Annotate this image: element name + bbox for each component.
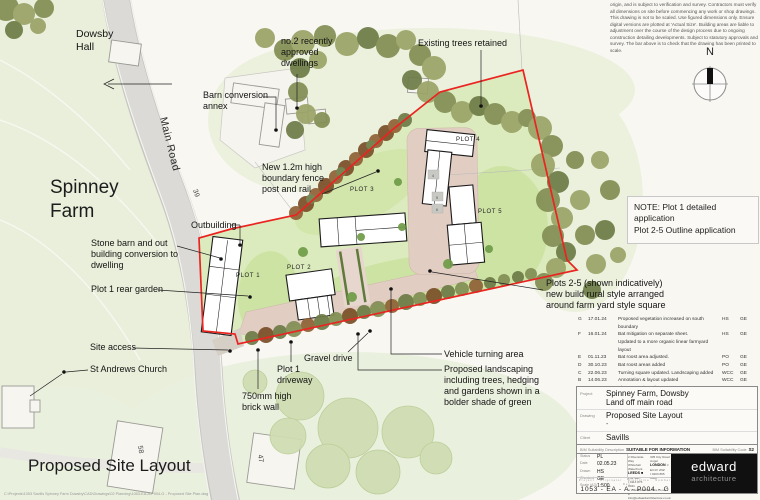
church-label: St Andrews Church	[90, 364, 167, 375]
dowsby-hall-label: Dowsby Hall	[76, 28, 113, 54]
rear-garden-label: Plot 1 rear garden	[91, 284, 163, 295]
revision-row: D30.10.23Bat roost areas addedPOGE	[578, 362, 757, 370]
site-access-label: Site access	[90, 342, 136, 353]
drawing-number-row: Project · Originator · Discipline · Numb…	[577, 477, 673, 493]
plots-2-5-label: Plots 2-5 (shown indicatively) new build…	[546, 278, 666, 311]
gravel-drive-label: Gravel drive	[304, 353, 353, 364]
client-label: Client	[577, 433, 606, 442]
date-value: 02.05.23	[597, 461, 616, 468]
north-needle	[707, 68, 713, 84]
title-block-bottom: StatusPL Date02.05.23 DrawnHS CheckedGE …	[576, 454, 758, 494]
plot-4-label: PLOT 4	[456, 137, 480, 143]
turning-area-label: Vehicle turning area	[444, 349, 524, 360]
bim-suitability-row: BIM Suitability DescriptionSUITABLE FOR …	[576, 445, 758, 454]
drawing-label: Drawing	[577, 411, 606, 429]
drawing-value: Proposed Site Layout	[606, 411, 683, 420]
house-number-47: 47	[256, 454, 264, 463]
bim-code: S2	[749, 447, 754, 452]
revision-row: C22.06.23Turning square updated. Landsca…	[578, 370, 757, 378]
approved-dwellings-label: no.2 recently approved dwellings	[281, 36, 333, 69]
file-path: C:\Projects\1053 Savills Spinney Farm Do…	[4, 492, 208, 496]
plot-3-label: PLOT 3	[350, 187, 374, 193]
spinney-farm-label: Spinney Farm	[50, 176, 119, 224]
project-value: Spinney Farm, Dowsby Land off main road	[606, 389, 689, 408]
revision-row: Updated to a more organic linear farmyar…	[578, 339, 757, 354]
drawing-sub: -	[606, 421, 683, 429]
plot-1-label: PLOT 1	[236, 273, 260, 279]
brick-wall-label: 750mm high brick wall	[242, 391, 292, 413]
trees-retained-label: Existing trees retained	[418, 38, 507, 49]
landscaping-label: Proposed landscaping including trees, he…	[444, 364, 540, 408]
north-arrow: N	[684, 44, 736, 110]
note-box: NOTE: Plot 1 detailed application Plot 2…	[627, 196, 759, 244]
sheet-title: Proposed Site Layout	[28, 456, 191, 476]
status-value: PL	[597, 454, 603, 461]
drawing-number-labels: Project · Originator · Discipline · Numb…	[577, 478, 673, 486]
title-block: ProjectSpinney Farm, Dowsby Land off mai…	[576, 386, 758, 494]
plot-3-building	[319, 213, 407, 247]
barn-annex-label: Barn conversion annex	[203, 90, 268, 112]
bim-desc: SUITABLE FOR INFORMATION	[626, 447, 690, 452]
drawing-number: 1053 - EA - A - P004 - G	[577, 486, 673, 493]
edward-architecture-logo: edward architecture	[671, 454, 757, 493]
plot-2-label: PLOT 2	[287, 265, 311, 271]
driveway-label: Plot 1 driveway	[277, 364, 313, 386]
house-number-58: 58	[136, 445, 144, 454]
revision-row: E01.11.23Bat roost area adjusted.POGE	[578, 354, 757, 362]
fence-label: New 1.2m high boundary fence post and ra…	[262, 162, 324, 195]
plot-5-label: PLOT 5	[478, 209, 502, 215]
client-value: Savills	[606, 433, 629, 442]
revision-row: F16.01.24Bat mitigation on separate shee…	[578, 331, 757, 339]
north-label: N	[706, 46, 714, 58]
project-info: ProjectSpinney Farm, Dowsby Land off mai…	[576, 386, 758, 445]
project-label: Project	[577, 389, 606, 408]
revision-row: G17.01.24Proposed vegetation increased o…	[578, 316, 757, 331]
drawn-value: HS	[597, 469, 604, 476]
outbuilding-label: Outbuilding	[191, 220, 237, 231]
stone-barn-label: Stone barn and out building conversion t…	[91, 238, 178, 271]
drawing-sheet: Main Road 39 58 47 PLOT 1 PLOT 2 PLOT 3 …	[0, 0, 760, 500]
email: e info@edwardarchitecture.co.uk	[628, 492, 672, 500]
revision-row: B14.06.23Annotation & layout updatedWCCG…	[578, 377, 757, 385]
